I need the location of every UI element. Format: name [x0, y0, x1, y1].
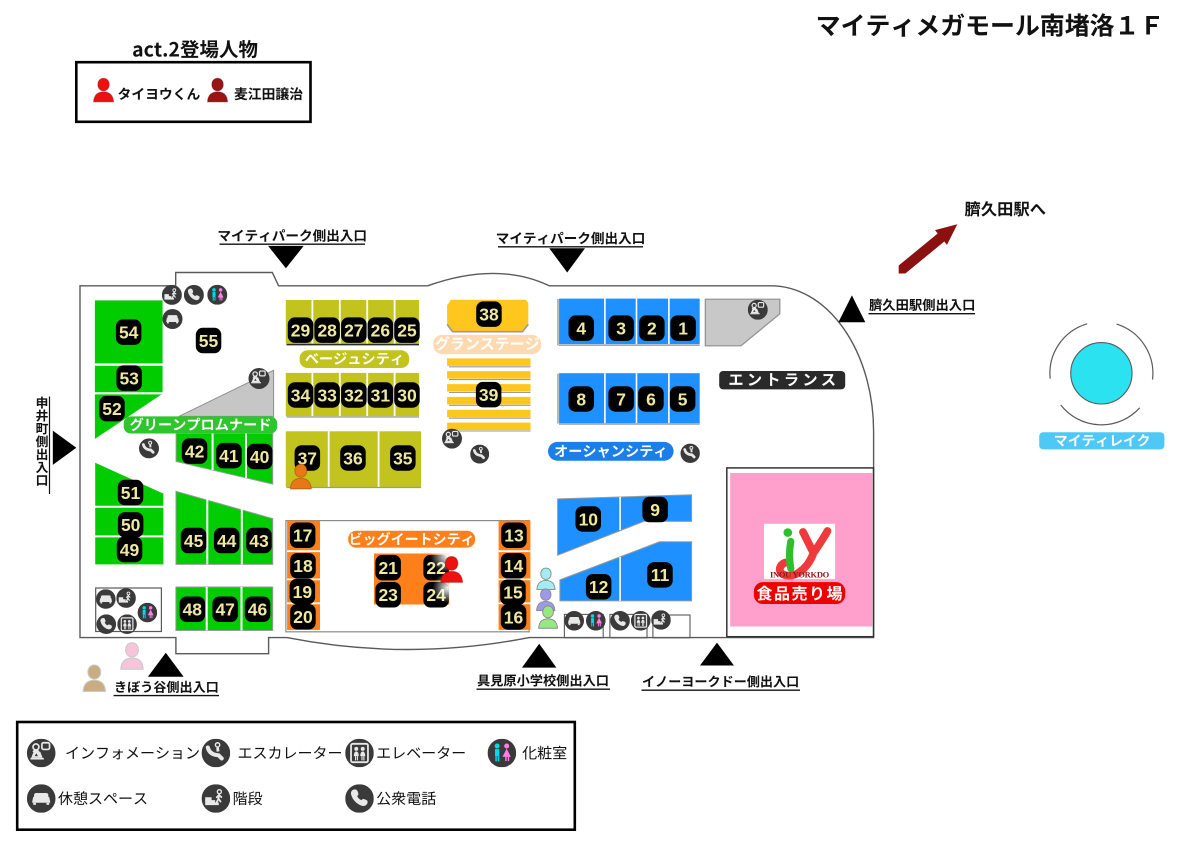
svg-text:15: 15 — [503, 583, 523, 603]
svg-text:43: 43 — [249, 531, 269, 551]
svg-text:12: 12 — [589, 577, 609, 597]
svg-text:14: 14 — [504, 556, 524, 576]
svg-text:36: 36 — [343, 448, 363, 468]
svg-text:38: 38 — [479, 305, 499, 325]
svg-text:44: 44 — [217, 531, 237, 551]
svg-text:49: 49 — [120, 540, 140, 560]
svg-text:32: 32 — [344, 385, 364, 405]
svg-text:39: 39 — [479, 385, 499, 405]
svg-text:5: 5 — [678, 389, 688, 409]
svg-text:6: 6 — [646, 389, 656, 409]
svg-text:35: 35 — [393, 448, 413, 468]
svg-text:3: 3 — [616, 319, 626, 339]
svg-text:26: 26 — [371, 320, 391, 340]
svg-text:4: 4 — [576, 319, 586, 339]
svg-text:55: 55 — [199, 331, 219, 351]
svg-text:50: 50 — [121, 515, 141, 535]
svg-text:17: 17 — [293, 526, 312, 546]
svg-text:28: 28 — [317, 320, 337, 340]
svg-text:23: 23 — [378, 585, 398, 605]
svg-text:25: 25 — [397, 320, 417, 340]
svg-text:8: 8 — [576, 389, 586, 409]
svg-text:19: 19 — [293, 582, 313, 602]
svg-text:41: 41 — [219, 446, 239, 466]
svg-text:54: 54 — [119, 323, 139, 343]
svg-text:42: 42 — [185, 441, 205, 461]
svg-text:30: 30 — [397, 385, 417, 405]
svg-text:48: 48 — [183, 600, 203, 620]
svg-text:2: 2 — [647, 319, 657, 339]
svg-text:45: 45 — [184, 531, 204, 551]
svg-text:51: 51 — [121, 483, 141, 503]
svg-text:27: 27 — [344, 320, 363, 340]
svg-text:9: 9 — [650, 500, 660, 520]
svg-text:7: 7 — [616, 389, 626, 409]
svg-text:21: 21 — [378, 558, 398, 578]
svg-text:18: 18 — [293, 556, 313, 576]
svg-text:40: 40 — [250, 447, 270, 467]
svg-text:20: 20 — [293, 607, 313, 627]
svg-text:31: 31 — [371, 385, 391, 405]
svg-text:46: 46 — [248, 600, 268, 620]
svg-text:11: 11 — [651, 565, 670, 585]
svg-text:29: 29 — [291, 320, 311, 340]
svg-text:52: 52 — [102, 399, 122, 419]
svg-text:16: 16 — [504, 607, 524, 627]
svg-text:10: 10 — [579, 509, 599, 529]
svg-text:47: 47 — [215, 600, 234, 620]
svg-text:INOU YORKDO: INOU YORKDO — [770, 570, 830, 580]
svg-text:33: 33 — [317, 385, 337, 405]
svg-text:34: 34 — [291, 385, 311, 405]
svg-text:13: 13 — [504, 526, 524, 546]
svg-text:1: 1 — [678, 319, 688, 339]
svg-text:53: 53 — [119, 369, 139, 389]
